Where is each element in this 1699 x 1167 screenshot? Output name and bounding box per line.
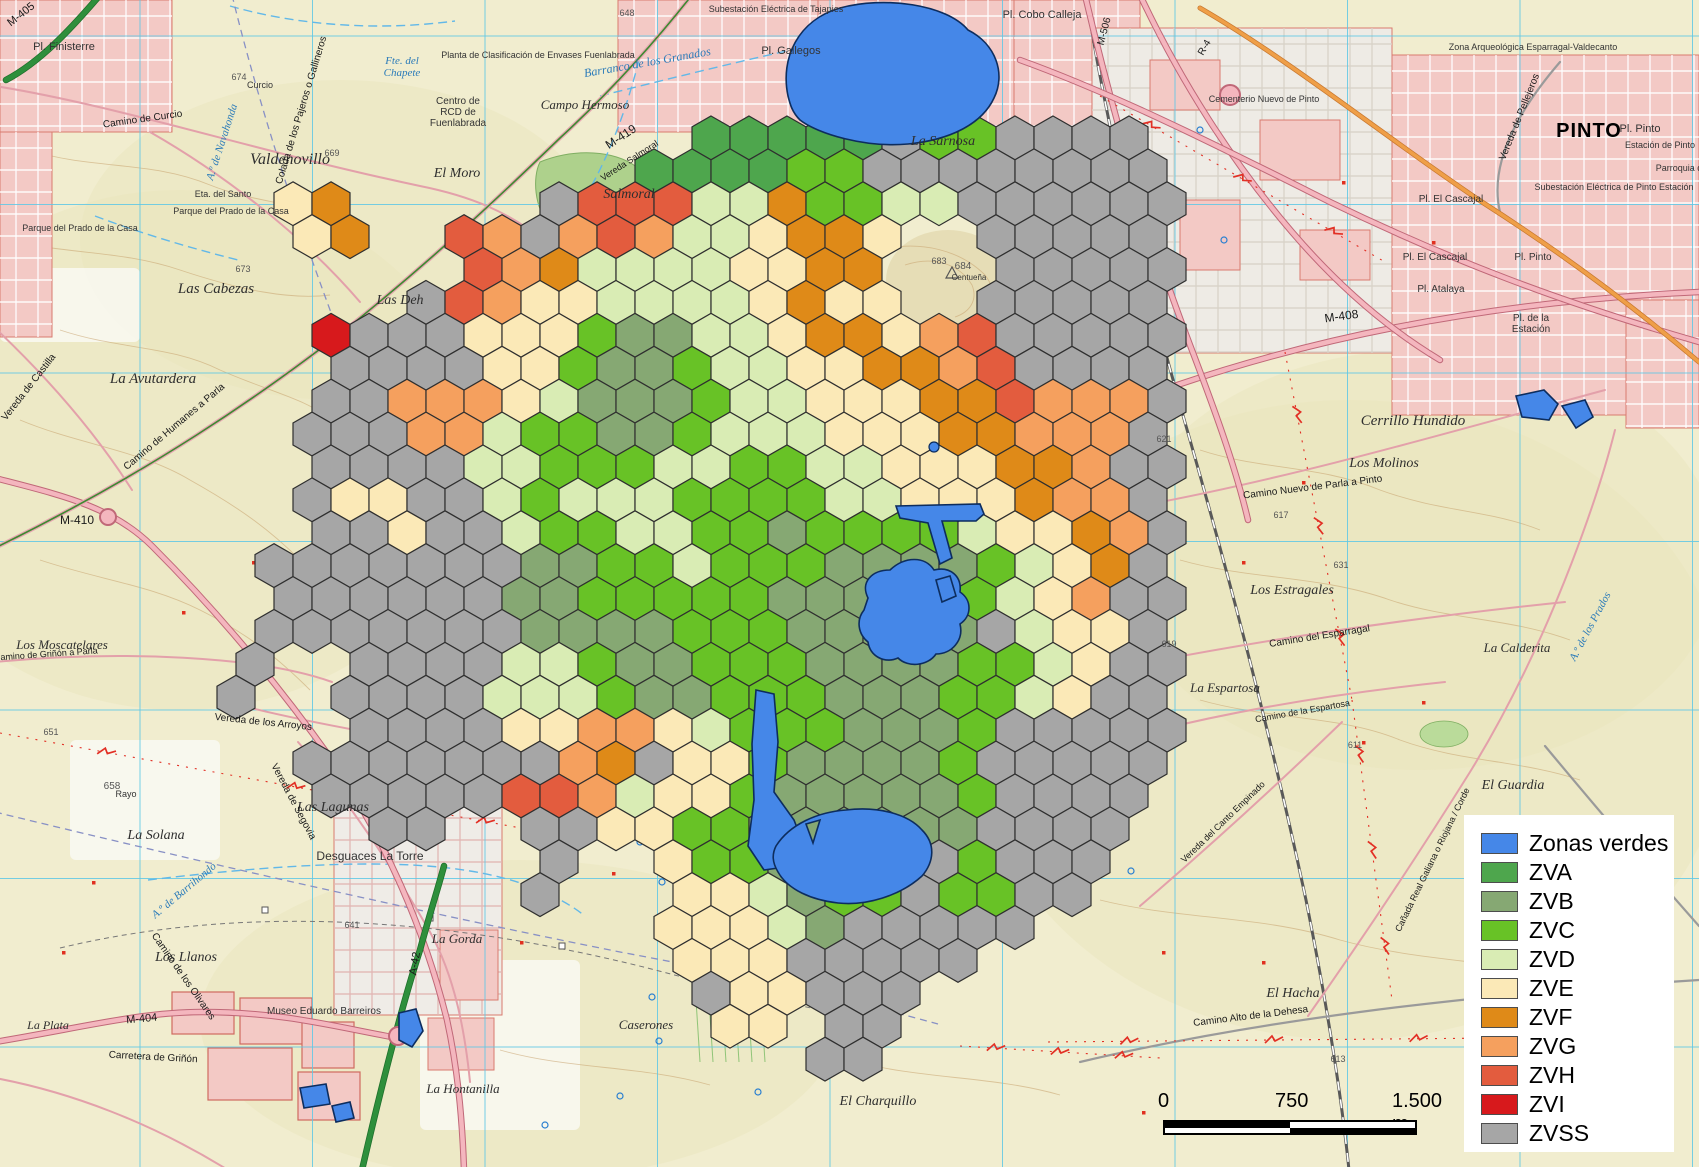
map-label: Parroquia d (1656, 163, 1699, 173)
map-label: Pl. Pinto (1620, 123, 1661, 135)
map-label: Fte. delChapete (384, 55, 421, 79)
map-label: Pl. Finisterre (33, 41, 95, 53)
map-label: Los Molinos (1348, 456, 1419, 471)
map-label: Subestación Eléctrica de Pinto Estación (1534, 182, 1693, 192)
map-label: 619 (1161, 639, 1176, 649)
map-label: La Sarnosa (910, 134, 975, 149)
map-label: Parque del Prado de la Casa (22, 223, 138, 233)
legend-swatch (1481, 1094, 1518, 1115)
map-label: 648 (619, 8, 634, 18)
map-label: La Avutardera (109, 371, 196, 387)
map-label: 631 (1333, 560, 1348, 570)
map-label: M-410 (60, 513, 94, 527)
legend-item-ZVD[interactable]: ZVD (1481, 945, 1674, 974)
map-label: PINTO (1556, 120, 1622, 142)
map-label: Las Cabezas (177, 281, 254, 297)
map-label: Pl. Gallegos (761, 45, 821, 57)
map-label: Los Estragales (1249, 583, 1334, 598)
legend-swatch (1481, 862, 1518, 883)
legend-label: ZVB (1529, 888, 1574, 915)
legend-label: ZVE (1529, 975, 1574, 1002)
map-label: Salmoral (603, 187, 654, 202)
legend-item-ZVI[interactable]: ZVI (1481, 1090, 1674, 1119)
legend-swatch (1481, 1123, 1518, 1144)
legend-label: ZVI (1529, 1091, 1565, 1118)
map-label: Centueña (952, 273, 987, 282)
map-label: 673 (235, 264, 250, 274)
zona-verde-polygon[interactable] (300, 1084, 330, 1108)
map-label: Estación de Pinto (1625, 140, 1695, 150)
legend-item-ZVC[interactable]: ZVC (1481, 916, 1674, 945)
map-label: 683 (931, 256, 946, 266)
map-label: Curcio (247, 80, 273, 90)
legend-label: ZVA (1529, 859, 1572, 886)
map-label: Pl. de laEstación (1512, 313, 1550, 335)
map-label: La Espartosa (1189, 680, 1260, 695)
map-label: Las Lagunas (296, 800, 370, 815)
map-label: Pl. Cobo Calleja (1003, 9, 1083, 21)
map-label: El Moro (433, 166, 481, 181)
map-label: Museo Eduardo Barreiros (267, 1006, 381, 1017)
legend-label: Zonas verdes (1529, 830, 1668, 857)
map-label: El Charquillo (839, 1094, 917, 1109)
scale-bar-graphic (1163, 1120, 1417, 1135)
legend-swatch (1481, 891, 1518, 912)
legend-swatch (1481, 920, 1518, 941)
scale-label-0: 0 (1158, 1090, 1169, 1113)
map-label: Eta. del Santo (195, 189, 252, 199)
map-canvas[interactable]: ValdenovilloLas CabezasLa AvutarderaLos … (0, 0, 1699, 1167)
legend-label: ZVSS (1529, 1120, 1589, 1147)
map-label: Campo Hermoso (541, 97, 630, 112)
map-label: 611 (1348, 740, 1362, 750)
legend-item-ZVSS[interactable]: ZVSS (1481, 1119, 1674, 1148)
legend-label: ZVF (1529, 1004, 1572, 1031)
map-label: Cerrillo Hundido (1361, 413, 1466, 429)
legend-label: ZVH (1529, 1062, 1575, 1089)
legend-item-ZVE[interactable]: ZVE (1481, 974, 1674, 1003)
map-label: 641 (344, 920, 359, 930)
map-label: La Gorda (431, 931, 483, 946)
legend: Zonas verdesZVAZVBZVCZVDZVEZVFZVGZVHZVIZ… (1464, 815, 1674, 1152)
legend-swatch (1481, 949, 1518, 970)
legend-item-ZVA[interactable]: ZVA (1481, 858, 1674, 887)
legend-label: ZVC (1529, 917, 1575, 944)
map-stage: ValdenovilloLas CabezasLa AvutarderaLos … (0, 0, 1699, 1167)
map-label: Pl. Pinto (1514, 252, 1552, 263)
map-label: Pl. Atalaya (1417, 284, 1465, 295)
map-label: La Calderita (1483, 640, 1551, 655)
map-label: Caserones (619, 1017, 673, 1032)
map-label: 651 (43, 727, 58, 737)
map-label: 669 (324, 148, 339, 158)
map-label: Zona Arqueológica Esparragal-Valdecanto (1449, 42, 1617, 52)
map-label: 621 (1156, 434, 1171, 444)
map-label: El Hacha (1265, 986, 1319, 1001)
legend-item-ZVH[interactable]: ZVH (1481, 1061, 1674, 1090)
legend-item-ZVG[interactable]: ZVG (1481, 1032, 1674, 1061)
map-label: Planta de Clasificación de Envases Fuenl… (441, 50, 635, 60)
zona-verde-polygon[interactable] (859, 560, 969, 665)
legend-label: ZVD (1529, 946, 1575, 973)
legend-swatch (1481, 833, 1518, 854)
map-label: 617 (1273, 510, 1288, 520)
map-label: Pl. El Cascajal (1403, 252, 1467, 263)
legend-label: ZVG (1529, 1033, 1576, 1060)
scale-label-750: 750 (1275, 1090, 1308, 1113)
map-label: Pl. El Cascajal (1419, 194, 1483, 205)
scale-bar: 0 750 1.500 m (1158, 1090, 1438, 1150)
legend-item-ZVB[interactable]: ZVB (1481, 887, 1674, 916)
map-label: La Plata (26, 1018, 69, 1032)
map-label: La Hontanilla (425, 1081, 500, 1096)
map-label: Desguaces La Torre (316, 849, 424, 863)
map-label: Parque del Prado de la Casa (173, 206, 289, 216)
legend-item-ZVF[interactable]: ZVF (1481, 1003, 1674, 1032)
map-label: Las Deh (375, 293, 423, 308)
map-label: 658 (104, 781, 121, 792)
zona-verde-polygon[interactable] (332, 1102, 354, 1122)
legend-swatch (1481, 978, 1518, 999)
legend-item-Zonas-verdes[interactable]: Zonas verdes (1481, 829, 1674, 858)
map-label: 674 (231, 72, 246, 82)
map-label: El Guardia (1481, 778, 1545, 793)
map-label: Cementerio Nuevo de Pinto (1209, 94, 1320, 104)
legend-swatch (1481, 1036, 1518, 1057)
map-label: La Solana (126, 828, 184, 843)
legend-swatch (1481, 1065, 1518, 1086)
map-label: Subestación Eléctrica de Tajapies (709, 4, 844, 14)
legend-swatch (1481, 1007, 1518, 1028)
map-label: 684 (955, 261, 972, 272)
map-label: 613 (1330, 1054, 1345, 1064)
